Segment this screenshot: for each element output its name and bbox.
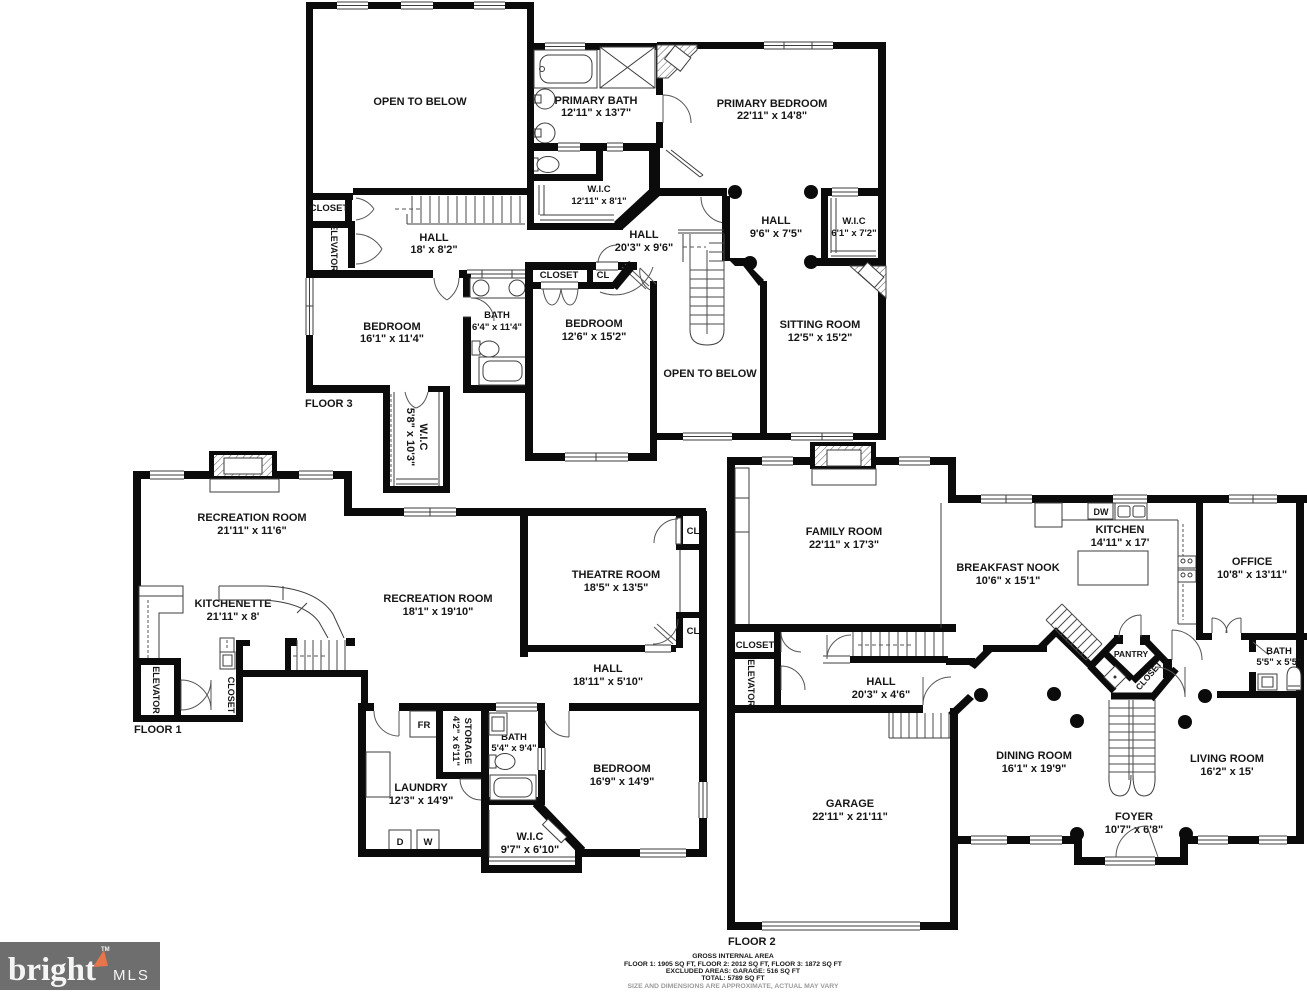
svg-text:GROSS INTERNAL AREA: GROSS INTERNAL AREA xyxy=(692,953,774,960)
svg-text:22'11" x 17'3": 22'11" x 17'3" xyxy=(809,539,879,551)
svg-text:12'3" x 14'9": 12'3" x 14'9" xyxy=(389,795,454,807)
svg-text:18'11" x 5'10": 18'11" x 5'10" xyxy=(573,676,643,688)
svg-text:BEDROOM: BEDROOM xyxy=(565,318,622,330)
svg-text:12'11" x 8'1": 12'11" x 8'1" xyxy=(571,196,626,207)
svg-text:20'3" x 9'6": 20'3" x 9'6" xyxy=(615,242,673,254)
svg-text:FLOOR 3: FLOOR 3 xyxy=(305,398,353,410)
svg-text:DINING ROOM: DINING ROOM xyxy=(996,750,1072,762)
svg-text:OFFICE: OFFICE xyxy=(1232,556,1272,568)
svg-text:CL: CL xyxy=(597,270,610,281)
svg-text:OPEN TO BELOW: OPEN TO BELOW xyxy=(663,368,757,380)
svg-text:16'1" x 11'4": 16'1" x 11'4" xyxy=(360,333,424,345)
svg-text:FLOOR 1: FLOOR 1 xyxy=(134,724,182,736)
svg-text:5'8" x 10'3": 5'8" x 10'3" xyxy=(404,408,416,466)
svg-text:BATH: BATH xyxy=(484,310,510,321)
svg-text:PANTRY: PANTRY xyxy=(1114,649,1149,659)
svg-text:9'6" x 7'5": 9'6" x 7'5" xyxy=(750,228,802,240)
svg-text:CL: CL xyxy=(687,526,700,537)
svg-text:12'6" x 15'2": 12'6" x 15'2" xyxy=(562,331,627,343)
svg-text:ELEVATOR: ELEVATOR xyxy=(746,659,756,707)
svg-text:HALL: HALL xyxy=(419,232,449,244)
svg-text:18'1" x 19'10": 18'1" x 19'10" xyxy=(403,606,474,618)
svg-text:HALL: HALL xyxy=(629,229,659,241)
svg-text:18'5" x 13'5": 18'5" x 13'5" xyxy=(584,582,649,594)
svg-text:10'7" x 6'8": 10'7" x 6'8" xyxy=(1105,824,1163,836)
svg-text:14'11" x 17': 14'11" x 17' xyxy=(1091,537,1150,549)
svg-text:CLOSET: CLOSET xyxy=(226,677,236,714)
svg-text:CLOSET: CLOSET xyxy=(310,203,349,214)
svg-text:CL: CL xyxy=(687,626,700,637)
svg-text:GARAGE: GARAGE xyxy=(826,798,874,810)
svg-text:22'11" x 21'11": 22'11" x 21'11" xyxy=(812,811,888,823)
svg-text:LAUNDRY: LAUNDRY xyxy=(394,782,448,794)
svg-text:THEATRE ROOM: THEATRE ROOM xyxy=(572,569,660,581)
svg-text:9'7" x 6'10": 9'7" x 6'10" xyxy=(501,844,559,856)
svg-text:22'11" x 14'8": 22'11" x 14'8" xyxy=(737,110,807,122)
svg-text:HALL: HALL xyxy=(761,215,791,227)
svg-text:ELEVATOR: ELEVATOR xyxy=(329,224,339,272)
svg-text:PRIMARY BATH: PRIMARY BATH xyxy=(555,95,638,107)
svg-text:5'5" x 5'5": 5'5" x 5'5" xyxy=(1256,657,1301,668)
svg-text:W.I.C: W.I.C xyxy=(517,831,544,843)
svg-text:18' x 8'2": 18' x 8'2" xyxy=(410,244,457,256)
svg-text:20'3" x 4'6": 20'3" x 4'6" xyxy=(852,689,910,701)
svg-text:16'2" x 15': 16'2" x 15' xyxy=(1200,766,1254,778)
svg-text:W.I.C: W.I.C xyxy=(842,216,865,227)
svg-text:STORAGE: STORAGE xyxy=(462,718,473,765)
svg-text:RECREATION ROOM: RECREATION ROOM xyxy=(197,512,306,524)
svg-text:BEDROOM: BEDROOM xyxy=(593,763,650,775)
svg-text:FOYER: FOYER xyxy=(1115,811,1153,823)
svg-text:16'9" x 14'9": 16'9" x 14'9" xyxy=(590,776,655,788)
svg-text:6'1" x 7'2": 6'1" x 7'2" xyxy=(831,228,876,239)
svg-text:W.I.C: W.I.C xyxy=(417,424,429,451)
svg-text:PRIMARY BEDROOM: PRIMARY BEDROOM xyxy=(717,98,828,110)
svg-text:FAMILY ROOM: FAMILY ROOM xyxy=(806,526,882,538)
svg-text:RECREATION ROOM: RECREATION ROOM xyxy=(383,593,492,605)
svg-text:MLS: MLS xyxy=(113,967,150,984)
svg-text:BEDROOM: BEDROOM xyxy=(363,321,420,333)
svg-text:SIZE AND DIMENSIONS ARE APPROX: SIZE AND DIMENSIONS ARE APPROXIMATE, ACT… xyxy=(628,983,839,990)
svg-text:LIVING ROOM: LIVING ROOM xyxy=(1190,753,1264,765)
svg-text:16'1" x 19'9": 16'1" x 19'9" xyxy=(1002,763,1067,775)
svg-text:HALL: HALL xyxy=(593,663,623,675)
svg-text:12'11" x 13'7": 12'11" x 13'7" xyxy=(561,107,631,119)
svg-text:BREAKFAST NOOK: BREAKFAST NOOK xyxy=(956,562,1059,574)
svg-text:SITTING ROOM: SITTING ROOM xyxy=(780,319,861,331)
svg-text:6'4" x 11'4": 6'4" x 11'4" xyxy=(472,322,522,333)
svg-text:FR: FR xyxy=(418,720,431,731)
svg-text:KITCHEN: KITCHEN xyxy=(1096,524,1145,536)
svg-text:CLOSET: CLOSET xyxy=(540,270,579,281)
svg-text:W.I.C: W.I.C xyxy=(587,184,610,195)
svg-text:DW: DW xyxy=(1094,507,1109,517)
svg-text:FLOOR 1: 1905 SQ FT, FLOOR 2:: FLOOR 1: 1905 SQ FT, FLOOR 2: 2012 SQ FT… xyxy=(624,961,843,968)
svg-text:FLOOR 2: FLOOR 2 xyxy=(728,936,776,948)
svg-text:ELEVATOR: ELEVATOR xyxy=(151,666,161,714)
svg-text:21'11" x 8': 21'11" x 8' xyxy=(207,611,260,623)
svg-text:TOTAL: 5789 SQ FT: TOTAL: 5789 SQ FT xyxy=(701,975,765,982)
svg-text:D: D xyxy=(397,837,404,848)
svg-text:5'4" x 9'4": 5'4" x 9'4" xyxy=(491,743,536,754)
svg-text:W: W xyxy=(424,837,433,848)
svg-text:OPEN TO BELOW: OPEN TO BELOW xyxy=(373,96,467,108)
svg-text:BATH: BATH xyxy=(1266,646,1292,657)
svg-text:4'2" x 6'11": 4'2" x 6'11" xyxy=(450,716,461,766)
svg-text:TM: TM xyxy=(101,947,110,953)
svg-text:HALL: HALL xyxy=(866,676,896,688)
svg-text:CLOSET: CLOSET xyxy=(736,640,775,651)
svg-text:10'8" x 13'11": 10'8" x 13'11" xyxy=(1217,569,1287,581)
svg-text:12'5" x 15'2": 12'5" x 15'2" xyxy=(788,332,853,344)
svg-text:bright: bright xyxy=(8,952,96,988)
svg-text:21'11" x 11'6": 21'11" x 11'6" xyxy=(217,525,287,537)
svg-text:EXCLUDED AREAS: GARAGE: 516 SQ: EXCLUDED AREAS: GARAGE: 516 SQ FT xyxy=(666,968,801,975)
svg-text:10'6" x 15'1": 10'6" x 15'1" xyxy=(976,575,1041,587)
